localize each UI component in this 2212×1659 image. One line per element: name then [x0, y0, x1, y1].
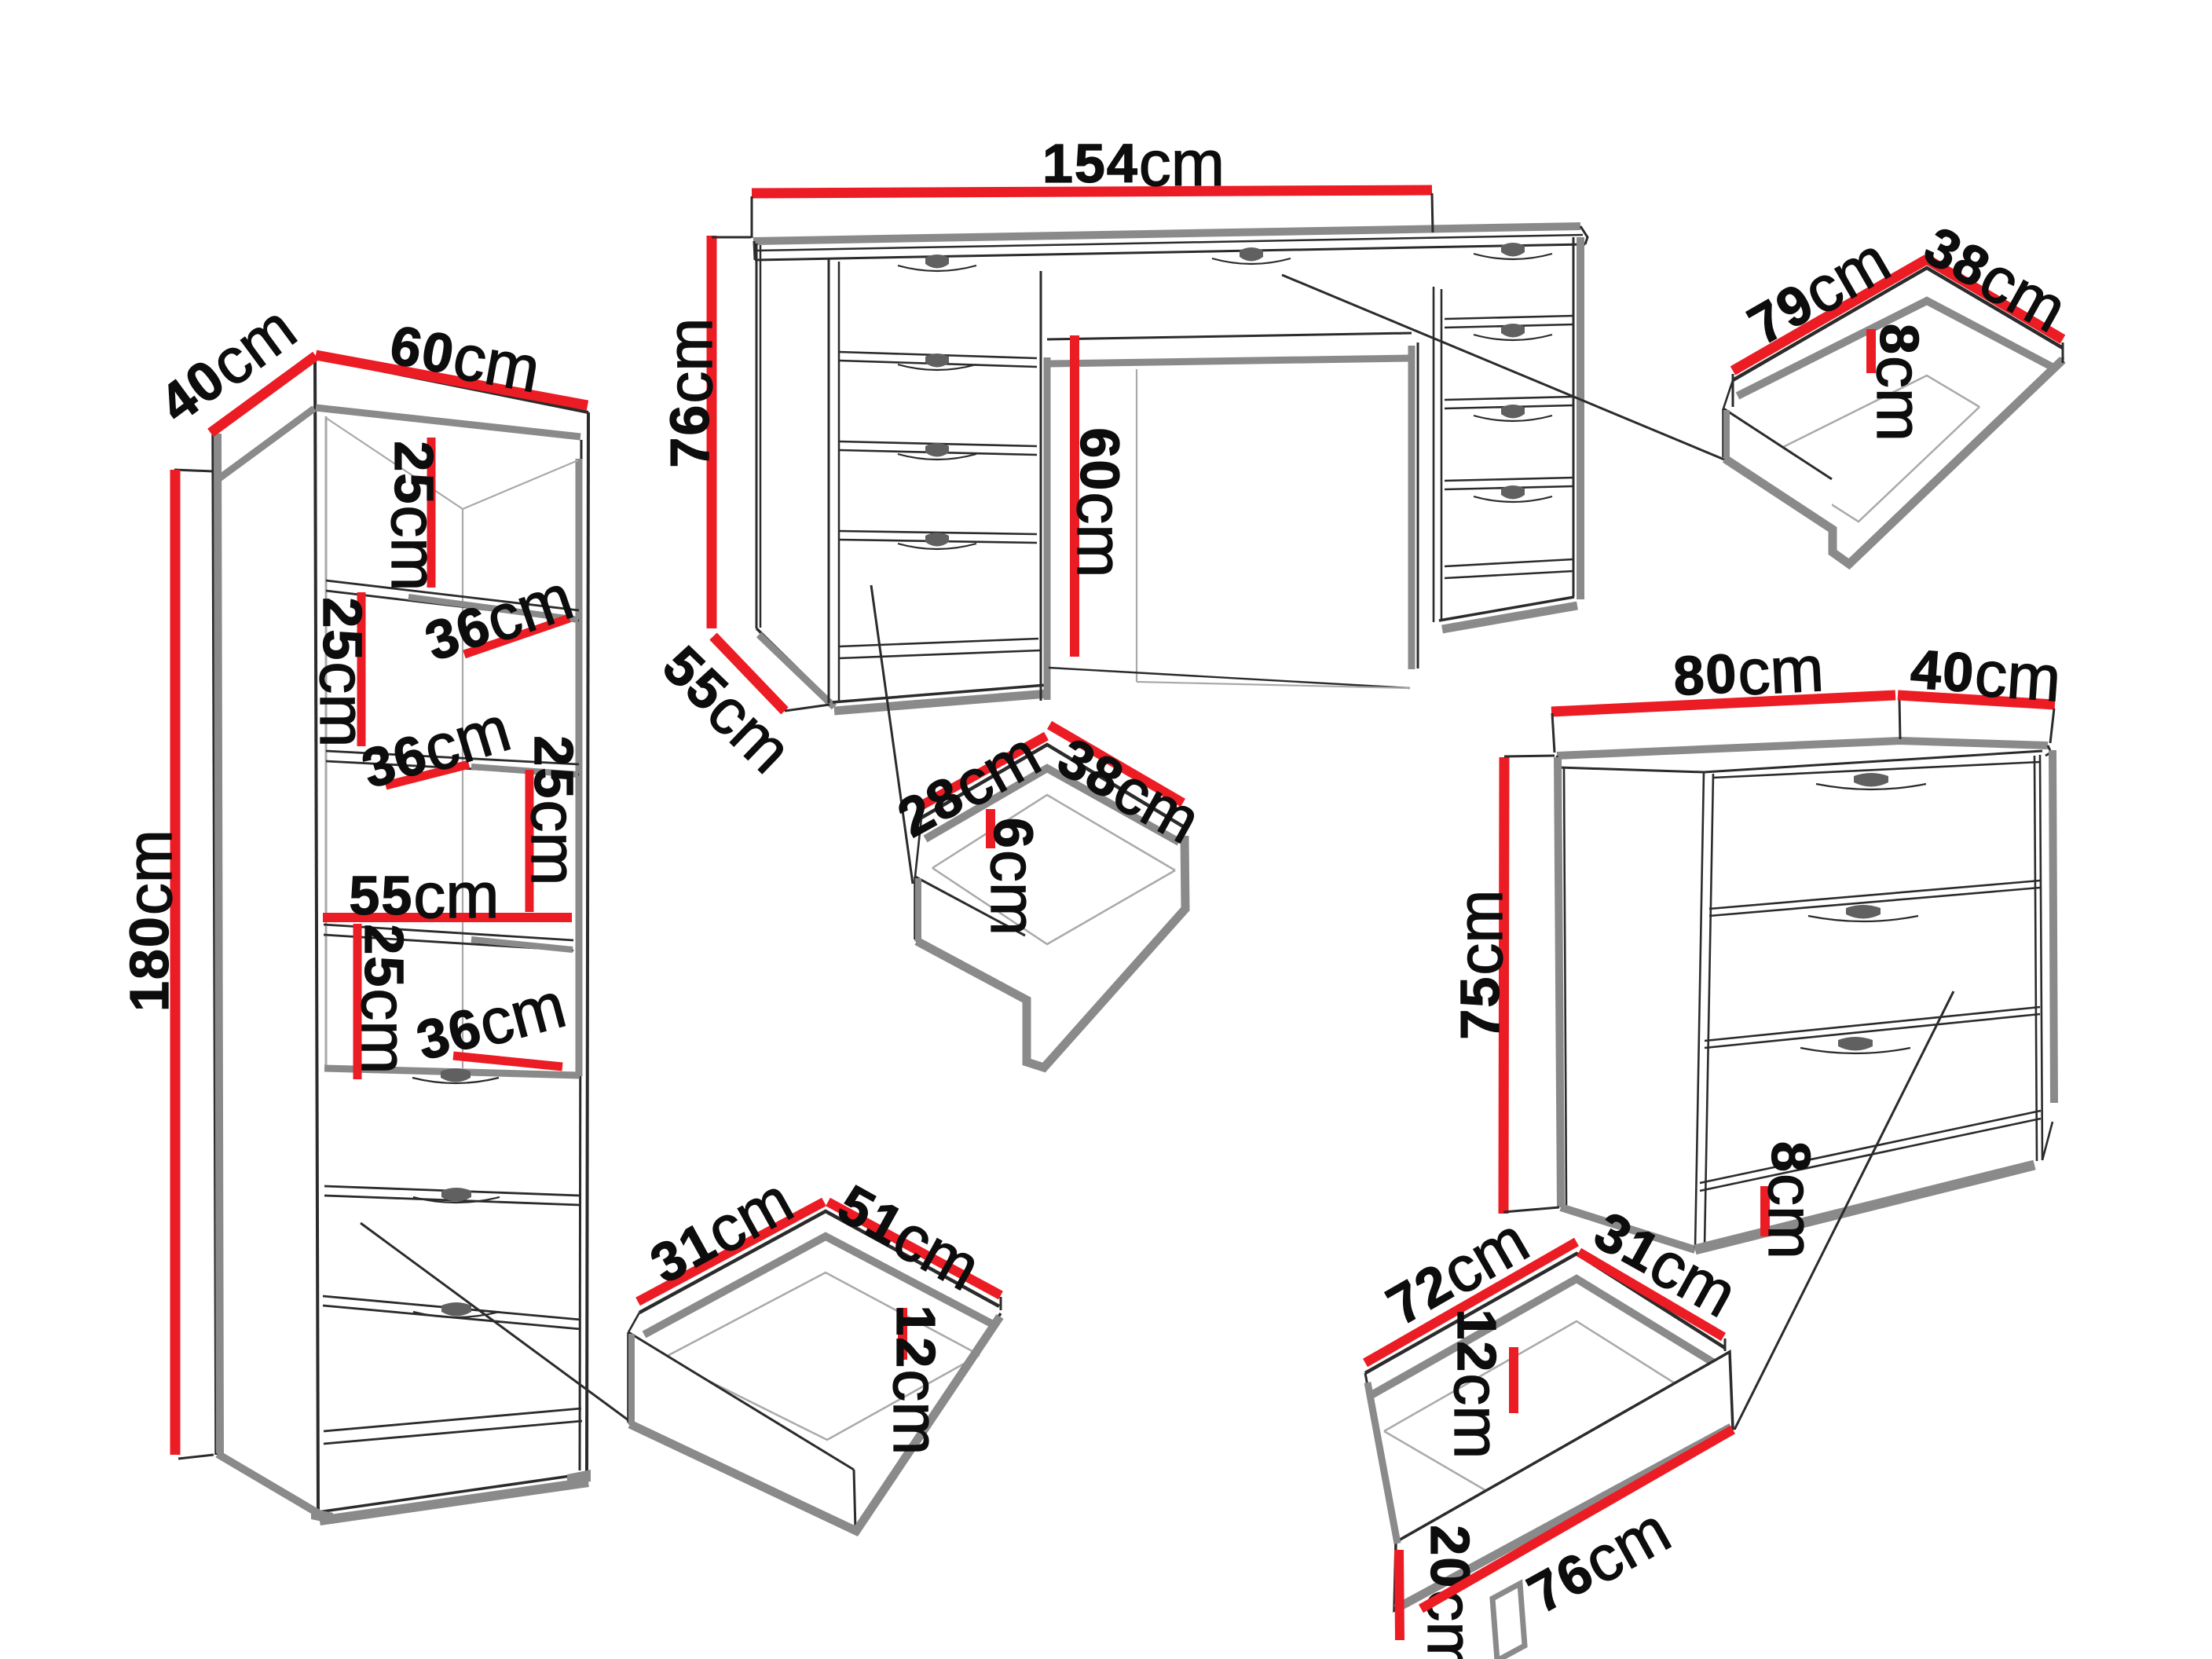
svg-text:25cm: 25cm [349, 924, 420, 1074]
svg-text:12cm: 12cm [881, 1305, 952, 1455]
svg-text:8cm: 8cm [1864, 324, 1935, 441]
svg-text:60cm: 60cm [1064, 427, 1136, 577]
svg-text:6cm: 6cm [978, 818, 1049, 936]
svg-text:154cm: 154cm [1042, 128, 1225, 200]
svg-text:8cm: 8cm [1756, 1141, 1827, 1259]
svg-text:75cm: 75cm [1445, 889, 1516, 1039]
svg-text:25cm: 25cm [307, 597, 379, 747]
svg-text:180cm: 180cm [114, 829, 185, 1012]
svg-text:80cm: 80cm [1672, 633, 1826, 712]
svg-text:25cm: 25cm [379, 441, 450, 591]
svg-text:25cm: 25cm [518, 735, 590, 885]
svg-text:12cm: 12cm [1441, 1309, 1513, 1459]
svg-text:55cm: 55cm [349, 860, 499, 932]
svg-text:76cm: 76cm [654, 317, 726, 467]
